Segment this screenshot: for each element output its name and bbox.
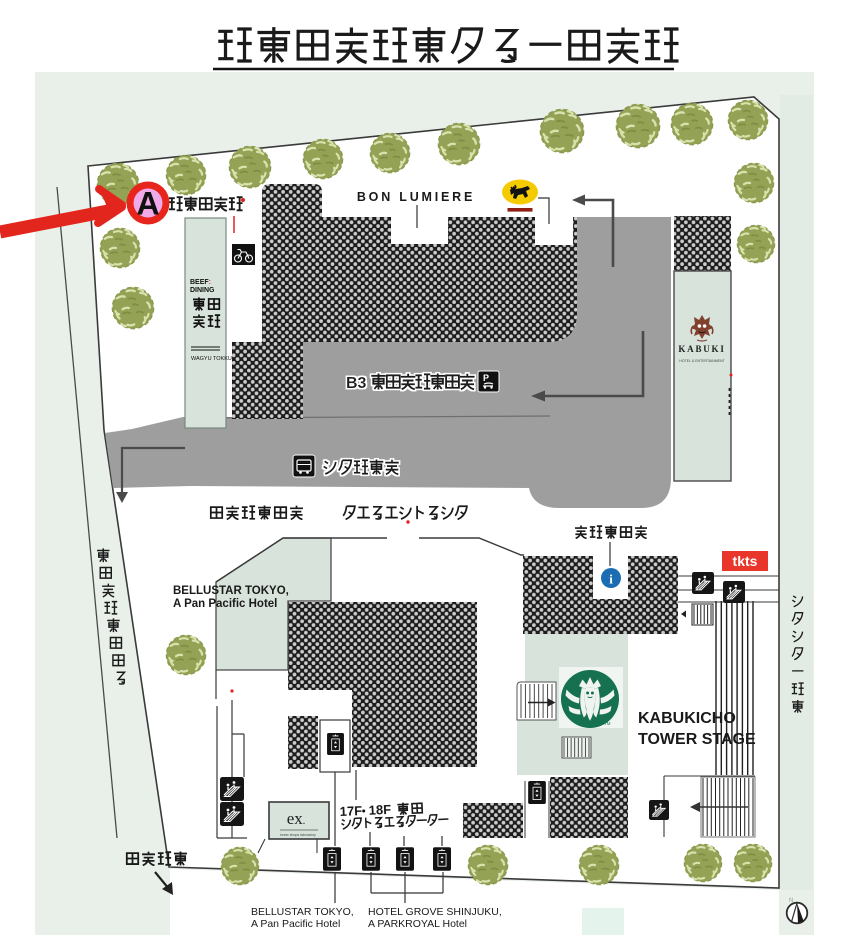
svg-text:tower shops laboratory: tower shops laboratory [280,833,316,837]
svg-text:A: A [136,186,159,222]
svg-text:N: N [789,898,793,904]
svg-text:HOTEL GROVE SHINJUKU,: HOTEL GROVE SHINJUKU, [368,906,502,918]
svg-text:tkts: tkts [733,553,758,569]
svg-text:B3: B3 [346,375,367,392]
svg-text:TOWER STAGE: TOWER STAGE [638,731,756,748]
svg-text:WAGYU TOKKU: WAGYU TOKKU [191,356,232,362]
svg-text:KABUKICHO: KABUKICHO [638,710,736,727]
svg-text:17F: 17F [339,803,362,819]
svg-text:P: P [483,373,489,383]
svg-text:DINING: DINING [190,287,215,294]
svg-text:BON LUMIERE: BON LUMIERE [357,190,475,204]
svg-text:ex.: ex. [287,809,306,828]
svg-text:A PARKROYAL Hotel: A PARKROYAL Hotel [368,918,467,930]
svg-text:BELLUSTAR TOKYO,: BELLUSTAR TOKYO, [251,906,354,918]
svg-text:A Pan Pacific Hotel: A Pan Pacific Hotel [251,918,340,930]
svg-text:TM: TM [604,721,611,726]
svg-text:BELLUSTAR TOKYO,: BELLUSTAR TOKYO, [173,585,289,597]
svg-text:BEEF:: BEEF: [190,279,211,286]
svg-text:A Pan Pacific Hotel: A Pan Pacific Hotel [173,598,277,610]
svg-text:HOTEL & ENTERTAINMENT: HOTEL & ENTERTAINMENT [679,359,725,363]
svg-text:i: i [609,572,613,587]
svg-text:18F: 18F [368,802,391,818]
svg-text:KABUKI: KABUKI [678,344,725,354]
